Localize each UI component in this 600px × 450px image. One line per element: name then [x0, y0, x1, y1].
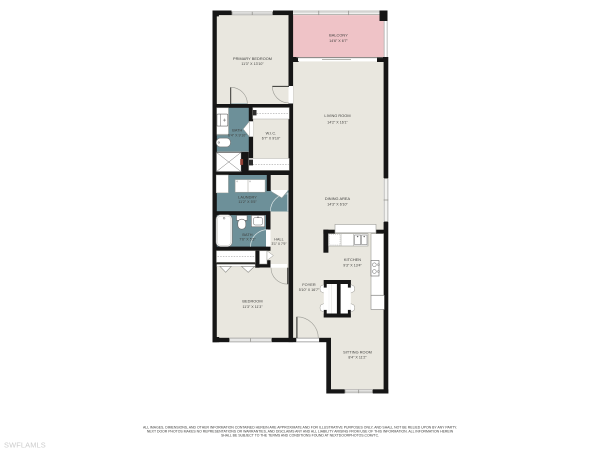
svg-text:8'4" X 11'2": 8'4" X 11'2"	[348, 356, 367, 360]
svg-text:BEDROOM: BEDROOM	[242, 300, 262, 304]
svg-text:HALL: HALL	[274, 237, 283, 241]
svg-text:KITCHEN: KITCHEN	[344, 258, 361, 262]
svg-text:3'1" X 7'9": 3'1" X 7'9"	[272, 242, 288, 246]
svg-text:9'3" X 13'4": 9'3" X 13'4"	[343, 263, 362, 267]
svg-text:7'6" X 5'3": 7'6" X 5'3"	[239, 238, 256, 242]
svg-text:6'4" X 9'10": 6'4" X 9'10"	[228, 133, 247, 137]
svg-text:14'3" X 6'10": 14'3" X 6'10"	[327, 203, 348, 207]
svg-text:FOYER: FOYER	[302, 283, 316, 287]
svg-text:14'6" X 6'7": 14'6" X 6'7"	[329, 39, 348, 43]
svg-text:14'2" X 16'1": 14'2" X 16'1"	[327, 120, 348, 124]
svg-text:BALCONY: BALCONY	[329, 34, 348, 38]
svg-text:LIVING ROOM: LIVING ROOM	[324, 114, 350, 118]
svg-text:11'2" X 5'5": 11'2" X 5'5"	[238, 200, 257, 204]
svg-text:SITTING ROOM: SITTING ROOM	[343, 350, 372, 354]
svg-text:BATH: BATH	[232, 129, 242, 133]
svg-text:5'10" X 16'7": 5'10" X 16'7"	[299, 288, 320, 292]
svg-text:DINING AREA: DINING AREA	[325, 197, 351, 201]
svg-text:6'7" X 9'10": 6'7" X 9'10"	[262, 137, 281, 141]
svg-text:11'3" X 13'10": 11'3" X 13'10"	[241, 62, 264, 66]
svg-text:SWFLAMLS: SWFLAMLS	[4, 441, 46, 450]
svg-text:BATH: BATH	[242, 233, 252, 237]
svg-text:11'3" X 11'3": 11'3" X 11'3"	[242, 305, 263, 309]
svg-text:W.I.C.: W.I.C.	[266, 132, 277, 136]
svg-text:SHALL BE SUBJECT TO THE TERMS: SHALL BE SUBJECT TO THE TERMS AND CONDIT…	[221, 433, 379, 437]
svg-text:PRIMARY BEDROOM: PRIMARY BEDROOM	[233, 57, 272, 61]
svg-text:LAUNDRY: LAUNDRY	[238, 195, 257, 199]
